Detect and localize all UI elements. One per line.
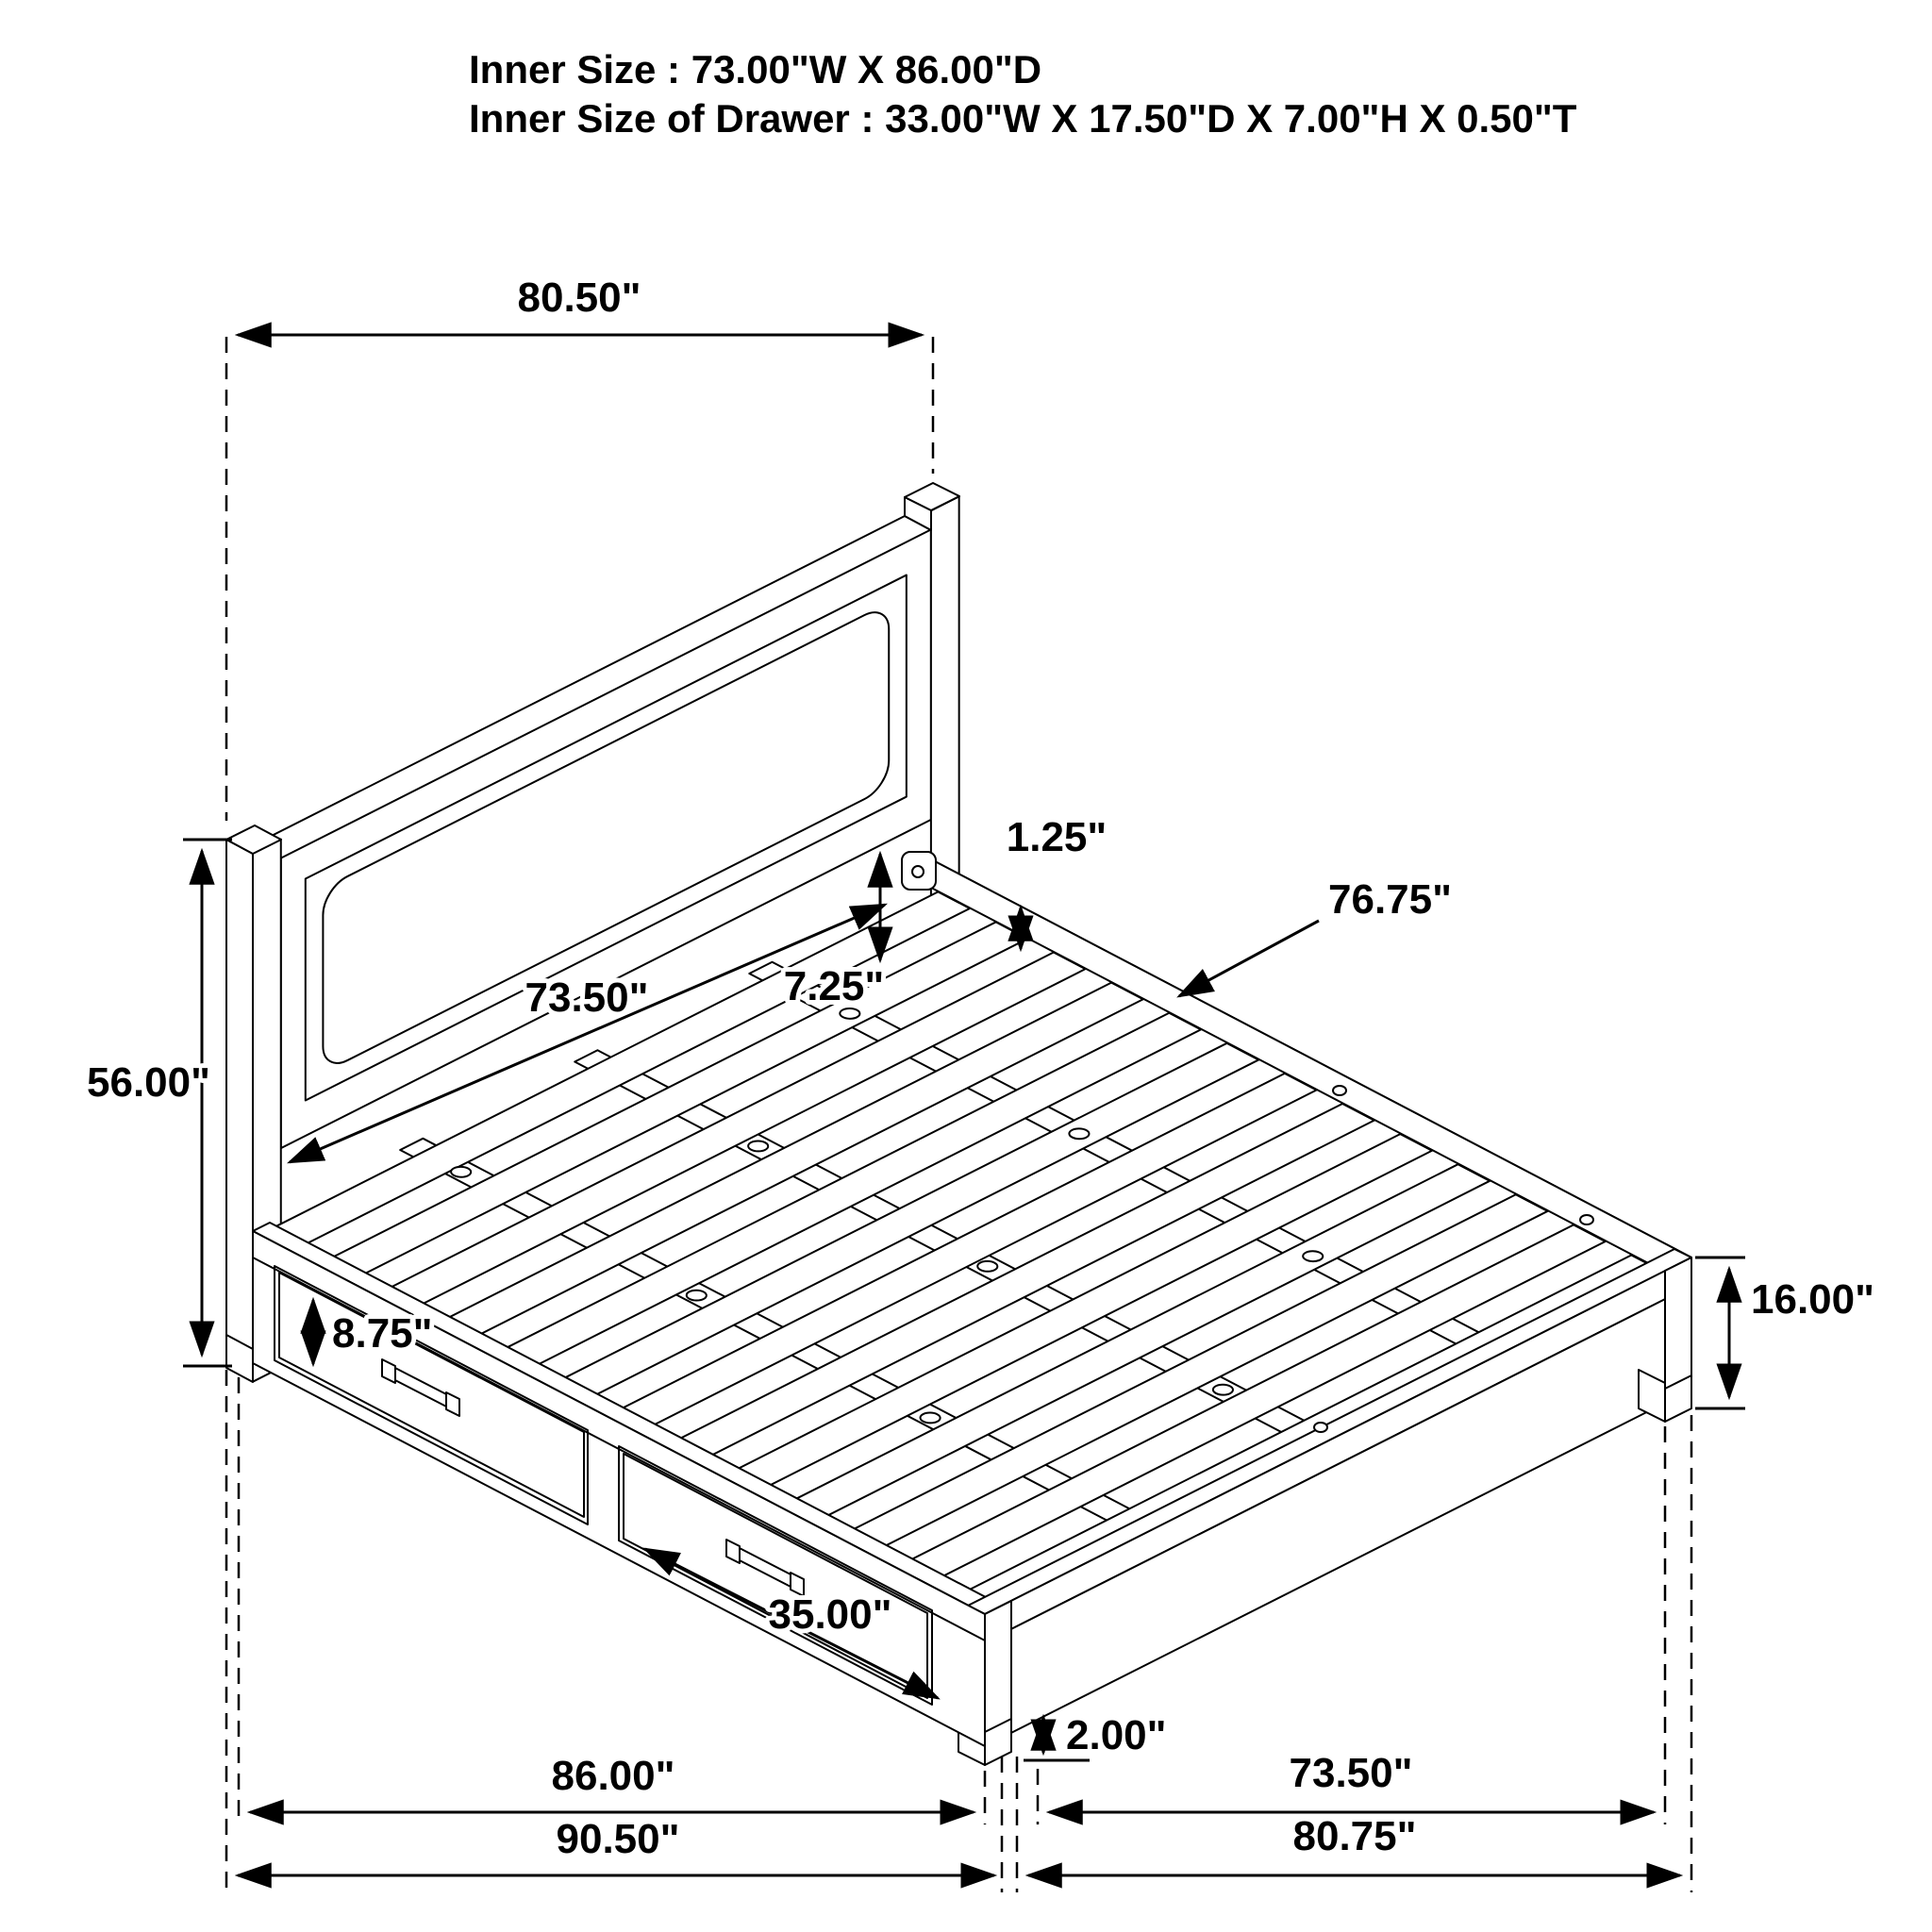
dimension-label-clearance: 2.00" (1066, 1712, 1167, 1758)
dimension-label-slat-length: 76.75" (1328, 876, 1452, 923)
headboard-right-post (931, 496, 959, 907)
screw-hole (912, 866, 924, 877)
screw-hole (1333, 1086, 1346, 1095)
dimension-label-overall-length: 90.50" (557, 1816, 680, 1862)
front-left-leg-front-face (985, 1601, 1011, 1765)
dimension-label-headboard-width: 80.50" (518, 275, 641, 321)
dimension-label-panel-gap: 7.25" (784, 963, 885, 1009)
bed-dimension-diagram: 80.50" 56.00" 73.50" 7.25" 1.25" 76.75" … (0, 0, 1932, 1932)
headboard-left-post-side-face (226, 840, 253, 1382)
dimension-label-side-length: 86.00" (552, 1753, 675, 1799)
dimension-label-headboard-height: 56.00" (87, 1059, 210, 1106)
leader-arrow-slat-length (1179, 921, 1319, 996)
header-notes: Inner Size : 73.00"W X 86.00"D Inner Siz… (469, 47, 1577, 141)
dimension-label-drawer-width: 35.00" (769, 1591, 892, 1638)
bed-drawing (226, 483, 1691, 1765)
front-right-leg (1665, 1257, 1691, 1422)
drawer-inner-size-note: Inner Size of Drawer : 33.00"W X 17.50"D… (469, 96, 1577, 141)
dimension-label-footboard-inner: 73.50" (1290, 1750, 1413, 1796)
diagram-page: 80.50" 56.00" 73.50" 7.25" 1.25" 76.75" … (0, 0, 1932, 1932)
dimension-label-overall-width: 80.75" (1293, 1813, 1417, 1859)
dimension-label-headboard-inner-width: 73.50" (525, 974, 649, 1021)
dimension-label-platform-height: 16.00" (1751, 1276, 1874, 1323)
dimension-label-drawer-height: 8.75" (332, 1310, 433, 1357)
dimension-label-rail-lip: 1.25" (1007, 814, 1108, 860)
screw-hole (1314, 1423, 1327, 1432)
screw-hole (1580, 1215, 1593, 1224)
inner-size-note: Inner Size : 73.00"W X 86.00"D (469, 47, 1041, 92)
